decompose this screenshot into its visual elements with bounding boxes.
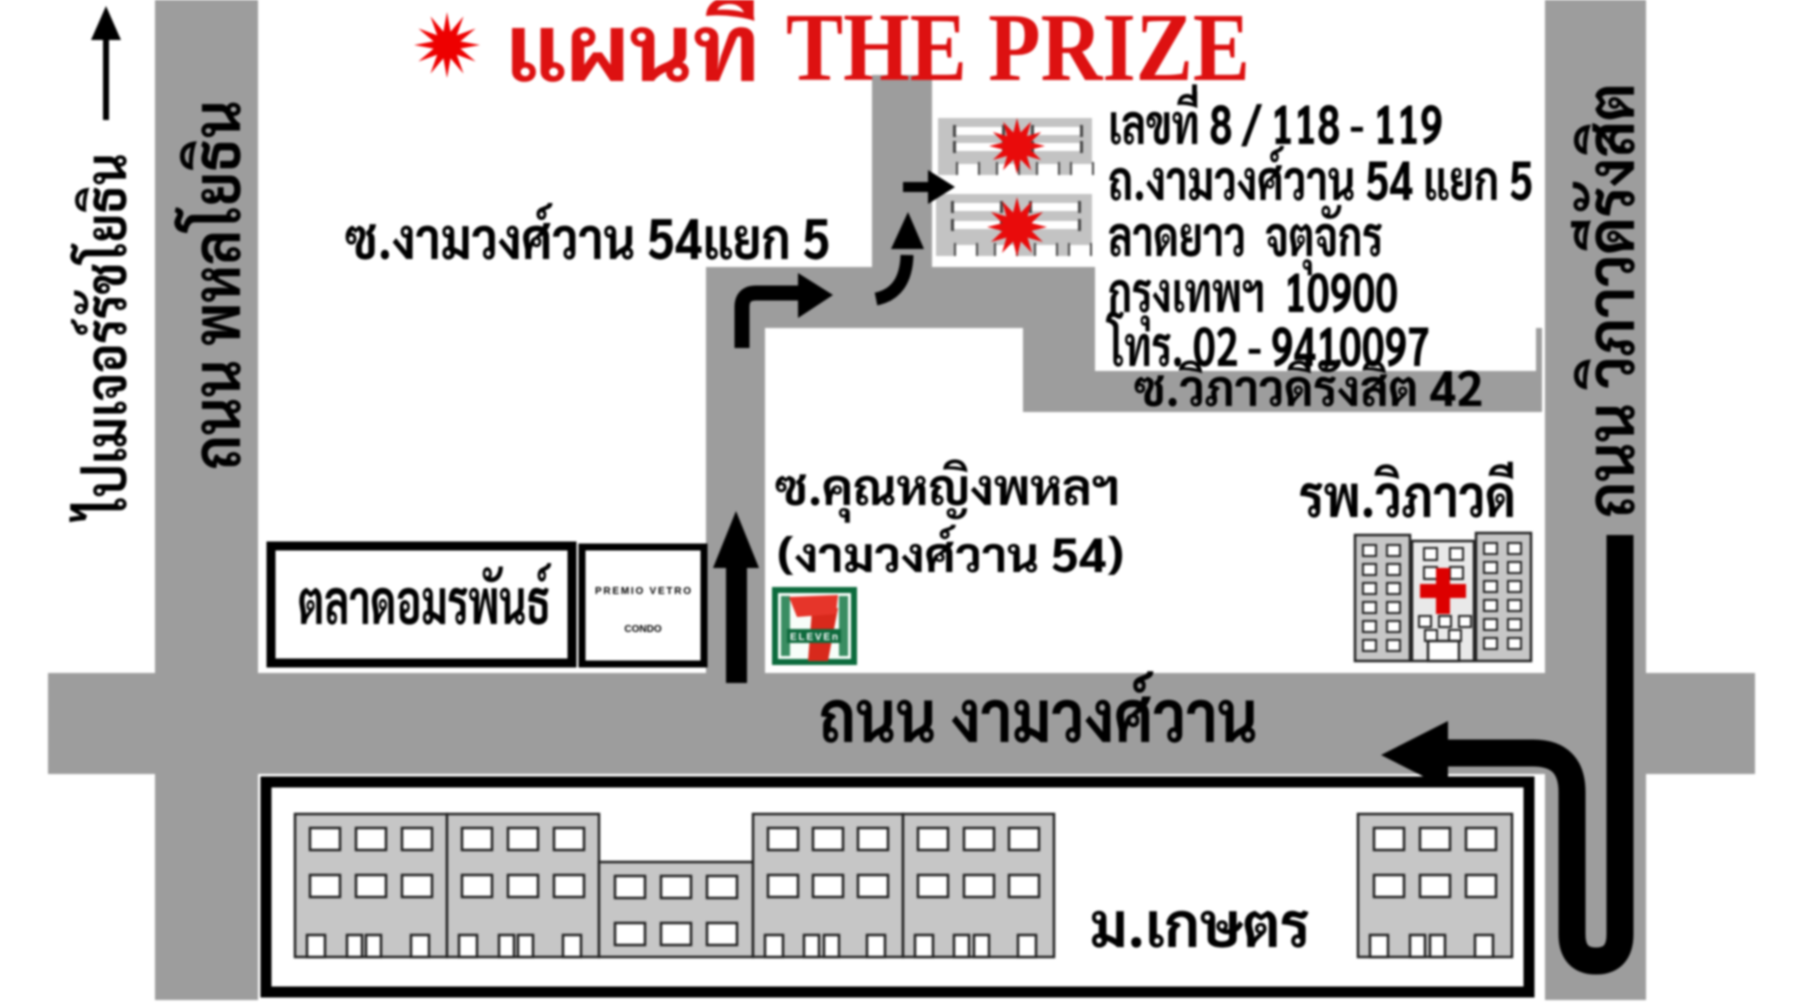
svg-text:THE PRIZE: THE PRIZE: [786, 0, 1250, 101]
svg-text:CONDO: CONDO: [624, 624, 661, 635]
svg-text:PREMIO VETRO: PREMIO VETRO: [595, 586, 691, 597]
